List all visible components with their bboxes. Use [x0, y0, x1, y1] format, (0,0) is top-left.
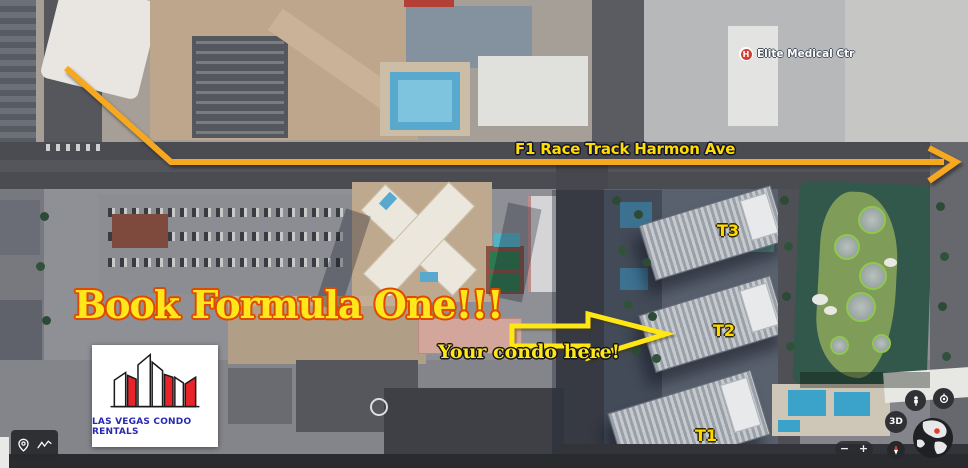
my-location-button[interactable] [933, 388, 954, 409]
3d-view-button[interactable]: 3D [885, 411, 907, 433]
hospital-poi: H Elite Medical Ctr [739, 47, 854, 61]
zoom-controls: − + [835, 441, 873, 457]
zoom-out-button[interactable]: − [835, 441, 854, 457]
globe-icon [913, 418, 953, 458]
pegman-icon [910, 395, 922, 407]
logo-buildings-icon [103, 349, 207, 415]
compass-icon [890, 444, 902, 456]
measure-icon [37, 439, 52, 450]
map-tools-pill [11, 430, 58, 459]
logo-text: LAS VEGAS CONDO RENTALS [92, 417, 218, 437]
3d-view-label: 3D [889, 417, 903, 427]
measure-tool-button[interactable] [37, 439, 52, 450]
my-location-icon [938, 393, 950, 405]
map-canvas[interactable]: F1 Race Track Harmon Ave Book Formula On… [0, 0, 968, 468]
pegman-button[interactable] [905, 390, 926, 411]
zoom-in-button[interactable]: + [854, 441, 873, 457]
pin-icon [17, 438, 30, 452]
hospital-label: Elite Medical Ctr [757, 48, 854, 60]
pin-tool-button[interactable] [17, 438, 30, 452]
logo-card: LAS VEGAS CONDO RENTALS [92, 345, 218, 447]
globe-button[interactable] [913, 418, 953, 458]
compass-button[interactable] [887, 441, 905, 459]
hospital-icon: H [739, 47, 753, 61]
